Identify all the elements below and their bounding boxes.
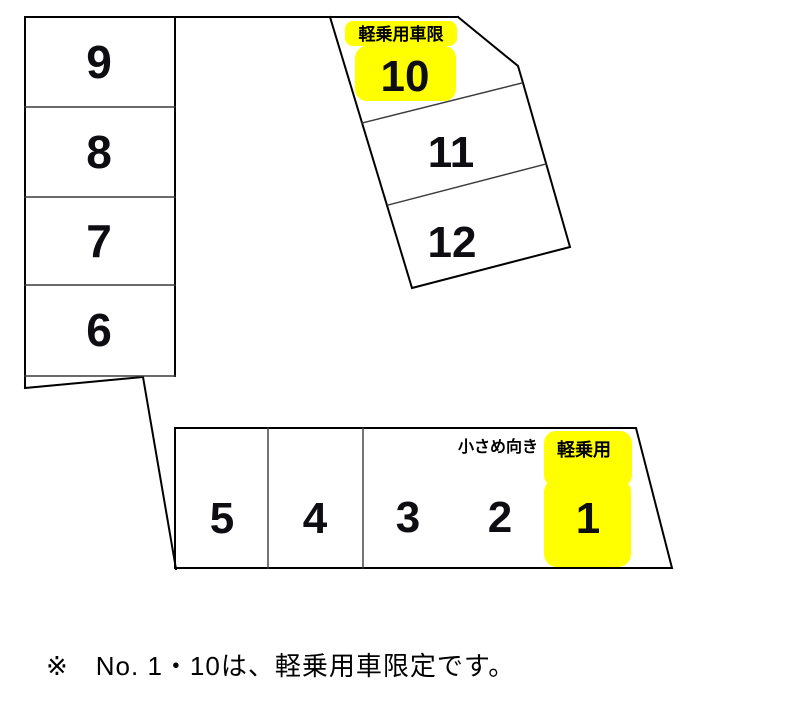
space-5-number: 5 [210, 494, 234, 543]
bottom-left-slant-line [25, 377, 143, 388]
space-12-number: 12 [428, 218, 477, 267]
space-8-number: 8 [86, 126, 112, 178]
space-2-number: 2 [488, 493, 512, 542]
space-4-number: 4 [303, 494, 328, 543]
parking-lot-diagram: 9 8 7 6 10 11 12 5 4 3 2 1 軽乗用車限 軽乗用 小さめ… [0, 0, 800, 580]
driveway-diagonal-line [143, 377, 176, 569]
space2-size-note-label: 小さめ向き [458, 437, 538, 456]
space-7-number: 7 [86, 215, 112, 267]
footnote-1: ※ No. 1・10は、軽乗用車限定です。 [46, 649, 725, 683]
footnotes: ※ No. 1・10は、軽乗用車限定です。 ※ No. 2は、小さめ向きです。 … [46, 581, 725, 706]
space-1-number: 1 [576, 494, 600, 543]
space-3-number: 3 [396, 493, 420, 542]
space-6-number: 6 [86, 304, 112, 356]
parking-lot-sketch: 9 8 7 6 10 11 12 5 4 3 2 1 軽乗用車限 軽乗用 小さめ… [0, 0, 800, 706]
space-10-number: 10 [381, 52, 430, 101]
space1-restriction-tag-label: 軽乗用 [557, 439, 611, 460]
space-9-number: 9 [86, 36, 112, 88]
space10-restriction-tag-label: 軽乗用車限 [359, 24, 444, 44]
space-11-number: 11 [428, 128, 475, 177]
